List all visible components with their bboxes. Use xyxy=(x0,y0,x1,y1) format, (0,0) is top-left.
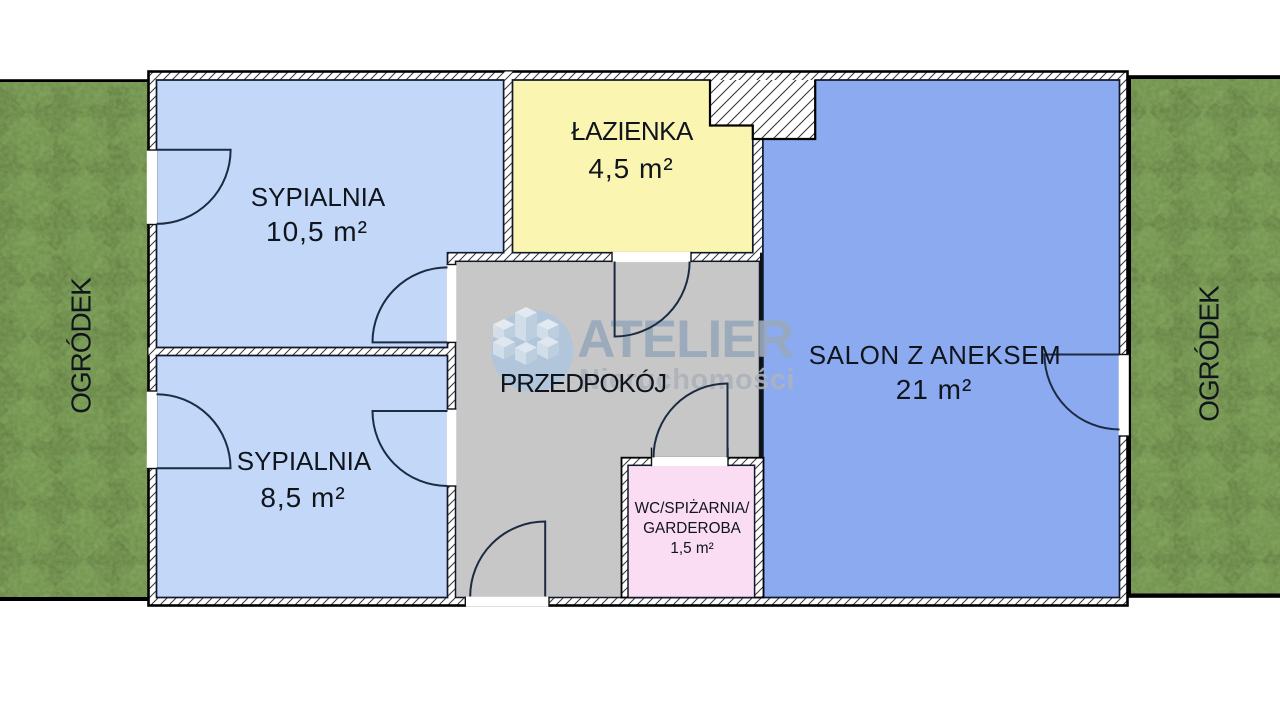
svg-text:ATELIER: ATELIER xyxy=(577,310,794,369)
svg-text:PRZEDPOKÓJ: PRZEDPOKÓJ xyxy=(500,368,666,398)
svg-text:SALON Z ANEKSEM: SALON Z ANEKSEM xyxy=(809,340,1061,370)
svg-text:OGRÓDEK: OGRÓDEK xyxy=(1194,285,1225,422)
svg-text:GARDEROBA: GARDEROBA xyxy=(643,520,742,537)
svg-text:1,5 m²: 1,5 m² xyxy=(670,540,713,557)
svg-text:WC/SPIŻARNIA/: WC/SPIŻARNIA/ xyxy=(635,499,750,517)
svg-text:SYPIALNIA: SYPIALNIA xyxy=(251,182,386,212)
svg-text:21 m²: 21 m² xyxy=(896,374,973,405)
svg-text:10,5 m²: 10,5 m² xyxy=(266,216,368,247)
svg-text:ŁAZIENKA: ŁAZIENKA xyxy=(571,116,694,146)
svg-text:4,5 m²: 4,5 m² xyxy=(588,153,673,184)
svg-text:8,5 m²: 8,5 m² xyxy=(260,482,345,513)
svg-text:OGRÓDEK: OGRÓDEK xyxy=(66,277,97,414)
svg-text:SYPIALNIA: SYPIALNIA xyxy=(237,446,372,476)
